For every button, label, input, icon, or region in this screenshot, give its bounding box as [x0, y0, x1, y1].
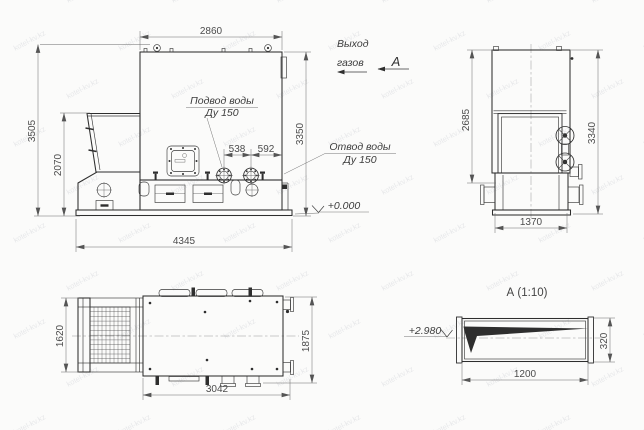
dim-2070: 2070: [53, 153, 64, 176]
dim-1370: 1370: [520, 217, 543, 228]
inspection-hatch: [167, 146, 199, 176]
hinge-icon: [89, 150, 97, 152]
top-hatch-lugs: [159, 288, 263, 297]
latch-icon: [183, 154, 187, 158]
view-a-label: А: [391, 54, 401, 69]
pipe-stub-left: [481, 185, 496, 205]
drain-elbow: [231, 180, 240, 195]
pipe-stub-right: [568, 185, 583, 205]
dim-3042: 3042: [206, 384, 229, 395]
leader-line: [284, 154, 325, 175]
base-front: [495, 173, 568, 210]
fuel-hopper: [86, 114, 141, 173]
section-a-title: А (1:10): [507, 287, 548, 299]
weld-wedge: [464, 327, 589, 354]
section-a: А (1:10) +2.980 1200 320: [404, 287, 615, 385]
technical-drawing: 2860 3505 2070 3350 538 592: [0, 0, 644, 430]
base-plate: [76, 210, 292, 216]
dim-3505: 3505: [27, 119, 38, 142]
dim-2685: 2685: [461, 108, 472, 131]
duct-outline: [462, 319, 588, 362]
hinge-icon: [86, 128, 94, 130]
dim-2860: 2860: [200, 26, 223, 37]
dim-4345: 4345: [173, 236, 196, 247]
dim-3350: 3350: [295, 122, 306, 145]
water-flange-group: [215, 167, 260, 185]
water-inlet-label-line1: Подвод воды: [190, 95, 254, 107]
front-lower-block: [78, 172, 140, 210]
grate-grid: [90, 307, 130, 363]
water-flange: [215, 167, 233, 185]
level-zero-label: +0.000: [328, 200, 361, 212]
dim-592: 592: [258, 144, 275, 155]
view-direction-arrow: А: [378, 54, 410, 71]
gas-outlet-label-line1: Выход: [337, 38, 369, 50]
ash-band: [139, 172, 288, 211]
water-outlet-label-line2: Ду 150: [342, 154, 376, 166]
top-view-dimensions: 1620 1875 3042: [55, 297, 317, 400]
dim-320: 320: [599, 332, 610, 349]
dim-3340: 3340: [587, 121, 598, 144]
water-inlet-label-line2: Ду 150: [204, 107, 238, 119]
top-view-plan: 1620 1875 3042: [55, 288, 317, 401]
front-view-dimensions: 2685 3340 1370: [461, 50, 603, 233]
dim-1620: 1620: [55, 324, 66, 347]
side-view: 2860 3505 2070 3350 538 592: [27, 26, 311, 252]
drawing-sheet: kotel-kv.kzkotel-kv.kzkotel-kv.kzkotel-k…: [0, 0, 644, 430]
furnace-front-box: [498, 114, 562, 173]
dim-538: 538: [229, 144, 246, 155]
water-flange: [242, 167, 260, 185]
outlet-flange-right: [570, 165, 582, 180]
front-view: 2685 3340 1370: [461, 44, 603, 233]
dim-1200: 1200: [514, 369, 537, 380]
bolt-dots: [149, 300, 279, 371]
dim-1875: 1875: [301, 329, 312, 352]
water-outlet-label-line1: Отвод воды: [329, 141, 391, 153]
side-view-dimensions: 2860 3505 2070 3350 538 592: [27, 26, 311, 252]
lifting-eyebolt-group: [144, 45, 271, 52]
water-inlet-note: Подвод воды Ду 150: [186, 95, 258, 167]
level-mark-2980: +2.980: [404, 325, 453, 337]
level-2980-label: +2.980: [409, 325, 442, 337]
leader-line: [207, 118, 222, 167]
gas-outlet-label-line2: газов: [337, 57, 364, 69]
gas-outlet-arrow: [337, 70, 367, 75]
